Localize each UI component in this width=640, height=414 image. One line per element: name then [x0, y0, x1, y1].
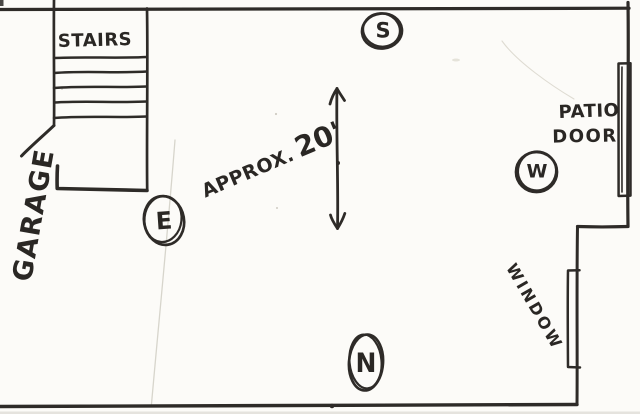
wall-top	[0, 8, 629, 9]
stair-tread	[54, 57, 147, 58]
compass-east-letter: E	[155, 208, 173, 233]
stairs-bottom-wall	[57, 166, 147, 191]
wall-bottom	[0, 405, 577, 407]
compass-west-letter: W	[527, 163, 548, 182]
patio-door-label-line1: PATIO	[558, 102, 619, 122]
room-walls	[0, 3, 629, 409]
patio-door-label-line2: DOOR	[552, 127, 618, 146]
wall-right	[628, 3, 629, 227]
stair-tread	[55, 72, 148, 74]
stair-tread	[54, 117, 147, 119]
wall-bottom-dot	[330, 404, 335, 409]
arrow-shaft	[337, 89, 338, 229]
floor-plan-sketch: STAIRS GARAGE APPROX.20' PATIO DOOR WIND…	[0, 0, 640, 414]
wall-notch-vertical	[577, 227, 578, 405]
compass-south-letter: S	[375, 21, 390, 42]
dimension-arrow	[330, 89, 345, 229]
compass-north-letter: N	[356, 350, 377, 377]
scan-artifacts	[0, 0, 640, 414]
stairs-label: STAIRS	[58, 31, 133, 51]
arrow-mid-blob	[336, 161, 340, 165]
stair-tread	[55, 102, 148, 103]
stair-tread	[54, 87, 147, 89]
floor-plan-linework	[0, 0, 640, 414]
